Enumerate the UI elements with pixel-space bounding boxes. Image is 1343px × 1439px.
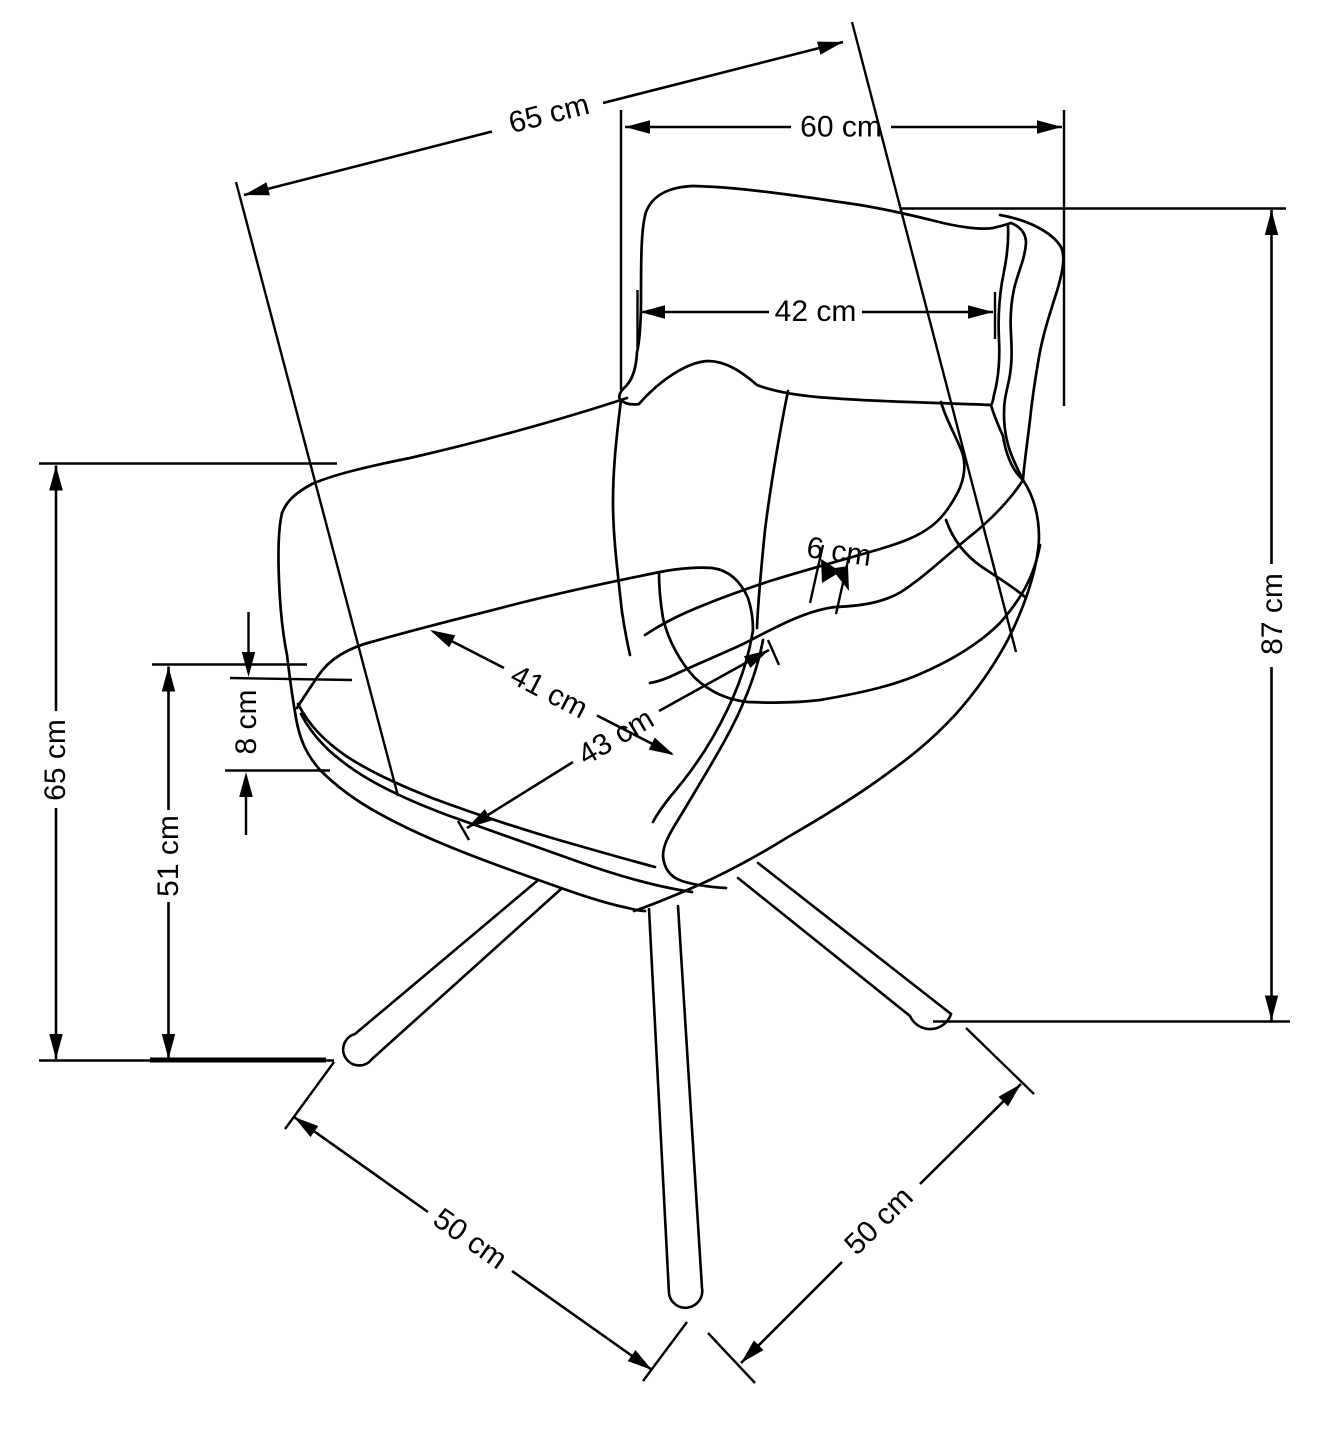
svg-text:60 cm: 60 cm <box>800 111 882 144</box>
svg-text:51 cm: 51 cm <box>152 815 185 897</box>
svg-text:42 cm: 42 cm <box>775 295 857 328</box>
svg-text:87 cm: 87 cm <box>1256 573 1289 655</box>
svg-text:65 cm: 65 cm <box>39 719 72 801</box>
svg-text:8 cm: 8 cm <box>230 689 263 754</box>
